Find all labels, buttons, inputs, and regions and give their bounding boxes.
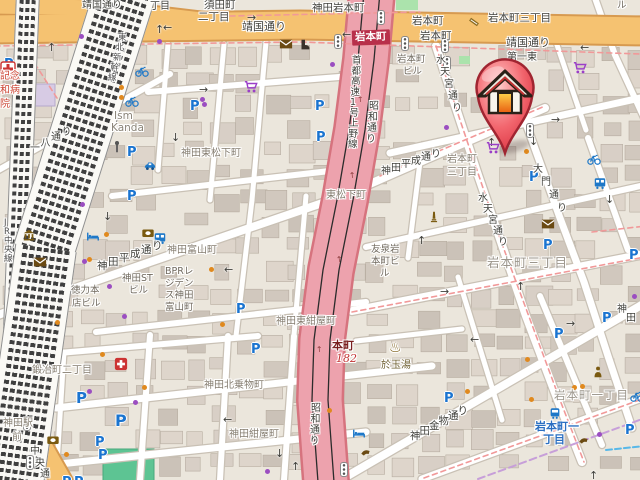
- highway-arrow: ↑: [336, 256, 344, 265]
- mail-icon: [33, 255, 47, 269]
- parking-icon: P: [554, 328, 564, 341]
- orange-poi-dot: [327, 408, 332, 413]
- map-label: ジデン: [165, 279, 194, 289]
- home-location-marker[interactable]: [468, 53, 542, 157]
- oneway-arrow: ↓: [171, 132, 180, 143]
- map-label: 鍛冶町二丁目: [32, 366, 92, 376]
- purple-poi-dot: [133, 400, 138, 405]
- orange-poi-dot: [465, 389, 470, 394]
- oneway-arrow: →: [199, 84, 208, 95]
- orange-poi-dot: [209, 267, 214, 272]
- bed-icon: [86, 230, 100, 244]
- highway-arrow: ↑: [349, 172, 356, 181]
- map-label: 岩本町一丁目: [554, 390, 629, 402]
- purple-poi-dot: [107, 284, 112, 289]
- map-label: 友泉岩: [371, 245, 400, 255]
- traffic-signal-icon: [26, 455, 34, 470]
- phone-icon: [577, 435, 591, 449]
- orange-poi-dot: [119, 85, 124, 90]
- map-label: ビル: [129, 286, 148, 296]
- purple-poi-dot: [597, 432, 602, 437]
- station-badge-iwamotocho: 岩本町: [352, 29, 390, 45]
- map-label: 靖国通り: [506, 37, 550, 48]
- parking-icon: P: [127, 146, 137, 159]
- map-label: 岩本町一: [535, 421, 579, 432]
- orange-poi-dot: [100, 352, 105, 357]
- oneway-arrow: ↑: [516, 281, 525, 292]
- oneway-arrow: ↑: [417, 235, 426, 246]
- green-patch: [396, 0, 418, 10]
- bed-icon: [352, 427, 366, 441]
- map-label: 岩本町: [420, 31, 452, 42]
- monument-icon: [427, 210, 441, 224]
- parking-icon: P: [98, 449, 108, 462]
- parking-icon: P: [115, 413, 127, 429]
- mail-icon: [279, 37, 293, 51]
- oneway-arrow: ←: [342, 29, 351, 40]
- map-label: 院: [0, 100, 10, 110]
- map-label: 前: [12, 433, 22, 443]
- map-label: 神田駅: [3, 419, 33, 429]
- oneway-arrow: ←: [470, 334, 479, 345]
- map-label: 和病: [0, 86, 20, 96]
- oneway-arrow: ↑: [47, 42, 56, 53]
- mail-icon: [541, 217, 555, 231]
- parking-icon: P: [315, 100, 325, 113]
- bike-icon: [125, 94, 139, 108]
- map-label: 本町: [332, 340, 354, 351]
- parking-icon: P: [251, 343, 261, 356]
- oneway-arrow: →: [566, 318, 575, 329]
- parking-icon: P: [74, 476, 84, 480]
- purple-poi-dot: [632, 294, 637, 299]
- parking-icon: P: [629, 249, 639, 262]
- map-label: 岩本町: [397, 55, 426, 65]
- purple-poi-dot: [87, 389, 92, 394]
- oneway-arrow: →: [440, 286, 449, 297]
- map-label: ル: [617, 1, 627, 11]
- oneway-arrow: ↑: [589, 470, 598, 480]
- map-label: 三丁目: [447, 168, 477, 178]
- cart-icon: [573, 61, 587, 75]
- map-label: 神田東紺屋町: [276, 317, 336, 327]
- orange-poi-dot: [142, 385, 147, 390]
- parking-icon: P: [190, 100, 200, 113]
- purple-poi-dot: [79, 34, 84, 39]
- parking-icon: P: [62, 476, 72, 480]
- orange-poi-dot: [119, 95, 124, 100]
- map-canvas[interactable]: 岩本町 靖国通り靖国通り靖国通り丁目須田町二丁目神田岩本町岩本町岩本町岩本町三丁…: [0, 0, 640, 480]
- traffic-signal-icon: [401, 36, 409, 51]
- traffic-signal-icon: [334, 34, 342, 49]
- train-icon: [548, 406, 562, 420]
- atm-icon: [141, 226, 155, 240]
- cart-icon: [244, 80, 258, 94]
- oneway-arrow: →: [551, 114, 560, 125]
- car-icon: [143, 159, 157, 173]
- map-label: 記念: [0, 72, 20, 82]
- oneway-arrow: ↓: [605, 194, 614, 205]
- bike-icon: [587, 152, 601, 166]
- person-icon: [591, 365, 605, 379]
- map-label: 靖国通り: [242, 21, 286, 32]
- map-label: 靖国通り: [82, 1, 122, 11]
- oneway-arrow: ↑: [291, 461, 300, 472]
- map-label: Ism: [114, 111, 133, 122]
- map-label: 神田東松下町: [181, 149, 241, 159]
- map-label: 岩本町三丁目: [488, 13, 551, 24]
- purple-poi-dot: [202, 102, 207, 107]
- map-label: 神田ST: [122, 274, 153, 284]
- map-label: 丁目: [543, 434, 565, 445]
- parking-icon: P: [444, 392, 454, 405]
- bank-icon: [22, 228, 36, 242]
- orange-poi-dot: [55, 320, 60, 325]
- parking-icon: P: [602, 312, 612, 325]
- oneway-arrow: ←: [224, 264, 233, 275]
- purple-poi-dot: [157, 39, 162, 44]
- shop-icon: [467, 15, 481, 29]
- bath-icon: ♨: [389, 341, 402, 355]
- purple-poi-dot: [330, 62, 335, 67]
- parking-icon: P: [625, 424, 635, 437]
- map-label: Kanda: [111, 123, 144, 134]
- parking-icon: P: [76, 391, 87, 406]
- map-label: 二丁目: [198, 12, 230, 23]
- purple-poi-dot: [82, 259, 87, 264]
- map-label: 須田町: [204, 0, 236, 11]
- map-label: 神田北乗物町: [204, 381, 264, 391]
- parking-icon: P: [316, 131, 326, 144]
- oneway-arrow: ↑: [155, 24, 164, 35]
- clinic-icon: [114, 357, 128, 371]
- oneway-arrow: ←: [223, 414, 232, 425]
- map-label: 岩本町: [412, 16, 444, 27]
- oneway-arrow: ←: [580, 42, 589, 53]
- traffic-signal-icon: [377, 10, 385, 25]
- map-label: BPRレ: [165, 267, 193, 277]
- map-label: 丁目: [150, 2, 170, 12]
- oneway-arrow: ↓: [103, 211, 112, 222]
- orange-poi-dot: [525, 357, 530, 362]
- map-label: 神田富山町: [167, 246, 217, 256]
- map-label: 東松下町: [326, 191, 366, 201]
- phone-icon: [359, 447, 373, 461]
- map-label: ル: [380, 269, 390, 279]
- map-label: ス神田: [165, 291, 194, 301]
- orange-poi-dot: [104, 232, 109, 237]
- parking-icon: P: [543, 239, 553, 252]
- map-label: 岩本町三丁目: [487, 257, 568, 270]
- purple-poi-dot: [265, 469, 270, 474]
- bus-icon: [593, 176, 607, 190]
- map-label: 徳力本: [71, 286, 100, 296]
- purple-poi-dot: [444, 125, 449, 130]
- map-label: 富山町: [165, 303, 194, 313]
- purple-poi-dot: [80, 202, 85, 207]
- map-label: 店ビル: [72, 299, 101, 309]
- atm-icon: [46, 433, 60, 447]
- orange-poi-dot: [64, 452, 69, 457]
- bike-icon: [630, 389, 640, 403]
- oneway-arrow: ←: [163, 22, 172, 33]
- highway-arrow: ↑: [316, 346, 323, 354]
- orange-poi-dot: [529, 397, 534, 402]
- oneway-arrow: ↓: [275, 448, 284, 459]
- orange-poi-dot: [220, 322, 225, 327]
- map-label: 本町ビ: [371, 257, 400, 267]
- map-label: 於玉湯: [381, 361, 411, 371]
- map-label: 神田紺屋町: [229, 430, 279, 440]
- parking-icon: P: [127, 190, 137, 203]
- parking-icon: P: [236, 303, 246, 316]
- bike-icon: [135, 64, 149, 78]
- orange-poi-dot: [87, 257, 92, 262]
- map-label: ビル: [403, 67, 422, 77]
- purple-poi-dot: [122, 314, 127, 319]
- map-label: 神田岩本町: [312, 3, 365, 14]
- map-label: 182: [336, 353, 357, 364]
- boot-icon: [298, 38, 312, 52]
- traffic-signal-icon: [340, 462, 348, 477]
- pole-icon: [110, 140, 124, 154]
